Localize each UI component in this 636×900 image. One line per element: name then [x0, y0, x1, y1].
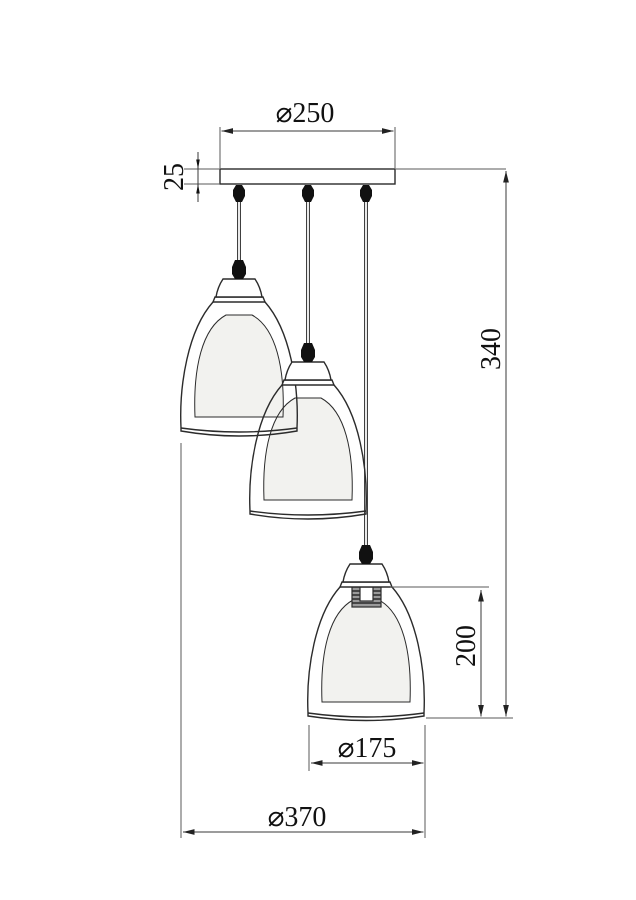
dim-label-canopy-thickness: 25	[159, 163, 190, 191]
cable-grip-3	[360, 185, 372, 202]
cord-grip-1	[232, 260, 246, 279]
dim-label-shade-diameter: ⌀175	[338, 733, 397, 764]
drawing-canvas: ⌀250 25 340 200 ⌀175 ⌀370	[0, 0, 636, 900]
ceiling-plate-body	[220, 169, 395, 184]
dim-shade-height: 200	[451, 590, 482, 717]
dim-canopy-thickness: 25	[159, 152, 200, 202]
shade-rim-2	[250, 511, 366, 515]
thread-notch-3	[360, 587, 373, 601]
arrow-up	[196, 184, 200, 194]
cord-grip-3	[359, 545, 373, 564]
pendant-cord-2	[307, 202, 310, 343]
ceiling-plate	[220, 169, 395, 184]
cable-grip-2	[302, 185, 314, 202]
neck-ring-3	[340, 582, 392, 587]
neck-ring-2	[282, 380, 334, 385]
cord-grip-2	[301, 343, 315, 362]
dim-label-canopy-diameter: ⌀250	[276, 98, 335, 129]
dim-shade-diameter: ⌀175	[311, 733, 424, 764]
neck-ring-1	[213, 297, 265, 302]
dim-label-shade-height: 200	[451, 625, 482, 667]
arrow-down	[196, 160, 200, 170]
technical-drawing-page: ⌀250 25 340 200 ⌀175 ⌀370	[0, 0, 636, 900]
dim-label-fixture-diameter: ⌀370	[268, 802, 327, 833]
socket-cap-3	[343, 564, 389, 582]
lamp-thread-3	[352, 587, 381, 607]
canopy-cable-grips	[233, 185, 372, 202]
cable-grip-1	[233, 185, 245, 202]
dim-fixture-diameter: ⌀370	[183, 802, 424, 833]
shade-rim-3	[308, 713, 424, 717]
socket-cap-1	[216, 279, 262, 297]
inner-shade-fill-3	[322, 600, 411, 702]
socket-cap-2	[285, 362, 331, 380]
dim-label-suspension-height: 340	[476, 328, 507, 370]
dim-canopy-diameter: ⌀250	[222, 98, 394, 131]
pendant-cord-1	[238, 202, 241, 260]
